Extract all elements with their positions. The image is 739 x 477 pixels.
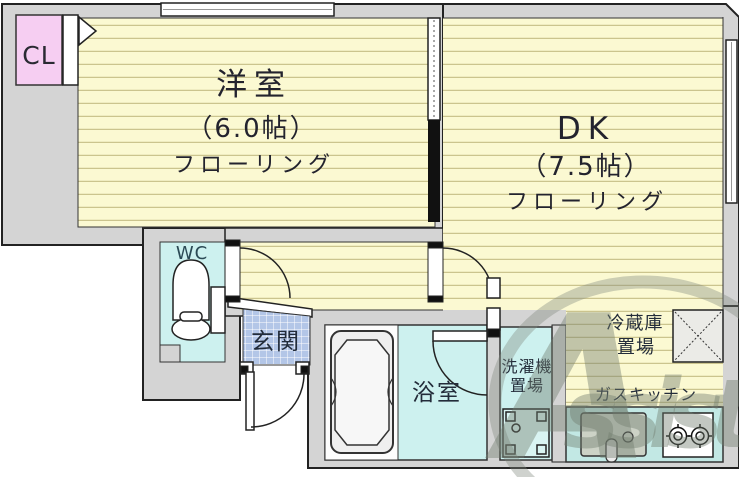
hall-door2-opening xyxy=(428,242,443,302)
bath-door-leaf xyxy=(433,331,487,341)
front-door-jamb-right-notch xyxy=(301,366,308,373)
partition-sliding-strip xyxy=(428,18,440,120)
front-door-leaf xyxy=(246,372,254,430)
front-door-arc-icon xyxy=(251,374,304,427)
hall-door2-jamb-bottom xyxy=(428,296,443,302)
floorplan-page: CL 洋室 （6.0帖） フローリング DK （7.5帖） フローリング WC … xyxy=(0,0,739,477)
hall-door1-jamb-bottom xyxy=(225,296,240,302)
fridge-x-icon xyxy=(673,310,723,362)
bathtub-icon xyxy=(331,331,393,453)
wc-floor-notch xyxy=(160,345,180,362)
floor-plan: CL 洋室 （6.0帖） フローリング DK （7.5帖） フローリング WC … xyxy=(0,0,739,477)
western-room-size: （6.0帖） xyxy=(186,114,317,144)
toilet-tank xyxy=(180,312,202,321)
closet-label: CL xyxy=(22,41,55,70)
dk-floor-label: フローリング xyxy=(506,190,668,215)
partition-solid-wall xyxy=(428,120,440,222)
hall-door1-opening xyxy=(225,240,240,302)
hall-door2-jamb-top xyxy=(428,242,443,248)
genkan-label: 玄関 xyxy=(251,329,301,355)
western-room-floor-label: フローリング xyxy=(173,153,335,178)
bathtub-inner xyxy=(335,340,389,445)
bathroom-label: 浴室 xyxy=(412,380,462,406)
hall-door1-jamb-top xyxy=(225,240,240,246)
wc-basin-icon xyxy=(211,287,225,333)
dk-size: （7.5帖） xyxy=(520,152,651,182)
toilet-icon xyxy=(172,260,210,340)
hallway-floor xyxy=(240,242,443,310)
dk-name: DK xyxy=(557,111,615,147)
toilet-bowl xyxy=(173,260,209,320)
wc-label: WC xyxy=(176,243,208,264)
western-room-name: 洋室 xyxy=(216,67,292,103)
watermark-rest: ssist xyxy=(563,360,739,470)
closet-door xyxy=(63,15,78,85)
